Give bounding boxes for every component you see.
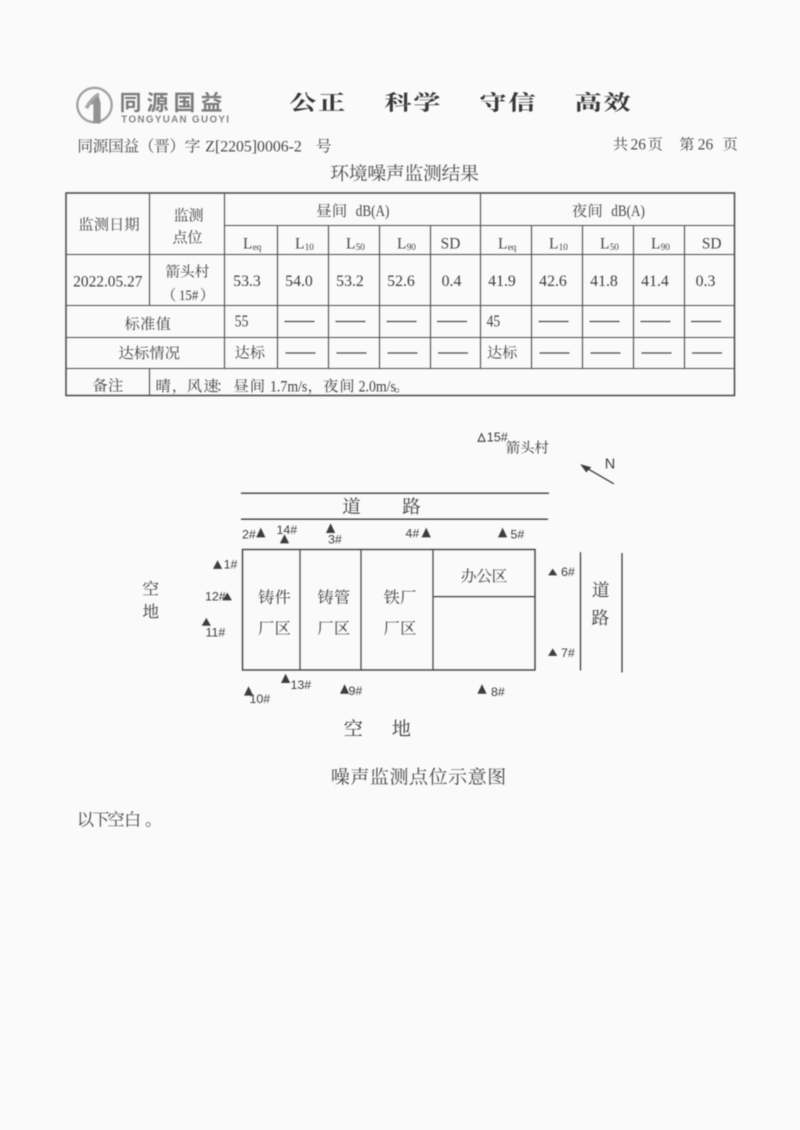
svg-text:13#: 13# [291, 678, 312, 692]
svg-text:eq: eq [253, 242, 262, 252]
svg-text:Z[2205]0006-2: Z[2205]0006-2 [205, 139, 302, 156]
svg-text:L: L [346, 235, 355, 252]
svg-text:2#: 2# [242, 528, 256, 542]
svg-text:1#: 1# [224, 557, 238, 571]
svg-text:dB(A): dB(A) [356, 203, 390, 220]
svg-text:10: 10 [559, 242, 569, 252]
svg-text:9#: 9# [349, 684, 363, 698]
svg-text:53.2: 53.2 [336, 273, 364, 290]
svg-text:L: L [397, 235, 406, 252]
svg-text:L: L [600, 235, 609, 252]
svg-text:8#: 8# [491, 685, 505, 699]
svg-text:10#: 10# [250, 692, 271, 706]
svg-text:54.0: 54.0 [285, 273, 313, 290]
svg-text:L: L [295, 235, 304, 252]
svg-text:eq: eq [508, 242, 517, 252]
svg-text:10: 10 [305, 242, 315, 252]
svg-text:L: L [243, 235, 252, 252]
svg-text:L: L [549, 235, 558, 252]
svg-text:50: 50 [356, 242, 366, 252]
svg-text:41.9: 41.9 [488, 273, 516, 290]
svg-text:15#: 15# [179, 287, 198, 303]
svg-text:2.0m/s: 2.0m/s [359, 379, 397, 396]
svg-text:L: L [498, 235, 507, 252]
svg-text:41.8: 41.8 [590, 273, 618, 290]
svg-text:45: 45 [487, 312, 501, 331]
svg-text:1.7m/s: 1.7m/s [270, 379, 308, 396]
svg-text:14#: 14# [277, 523, 298, 537]
svg-text:N: N [605, 456, 615, 472]
svg-text:53.3: 53.3 [233, 273, 261, 290]
svg-text:7#: 7# [561, 646, 575, 660]
svg-text:90: 90 [407, 242, 417, 252]
svg-text:12#: 12# [205, 590, 226, 604]
svg-text:6#: 6# [561, 565, 575, 579]
svg-text:SD: SD [441, 235, 461, 252]
svg-text:dB(A): dB(A) [611, 203, 645, 220]
svg-text:11#: 11# [206, 626, 226, 640]
svg-text:41.4: 41.4 [641, 273, 669, 290]
svg-text:50: 50 [610, 242, 620, 252]
svg-text:26: 26 [698, 137, 714, 154]
svg-text:4#: 4# [406, 527, 420, 541]
svg-text:26: 26 [631, 137, 647, 154]
svg-text:42.6: 42.6 [539, 273, 567, 290]
svg-text:5#: 5# [511, 528, 525, 542]
svg-text:0.3: 0.3 [696, 273, 716, 290]
svg-text:90: 90 [661, 242, 671, 252]
svg-text:2022.05.27: 2022.05.27 [73, 273, 142, 290]
svg-text:52.6: 52.6 [387, 273, 415, 290]
svg-text:TONGYUAN GUOYI: TONGYUAN GUOYI [121, 114, 230, 125]
svg-text:SD: SD [702, 235, 722, 252]
svg-text:L: L [651, 235, 660, 252]
svg-text:3#: 3# [328, 533, 342, 547]
svg-text:0.4: 0.4 [442, 273, 462, 290]
svg-text:55: 55 [235, 312, 249, 331]
svg-text:15#: 15# [487, 431, 508, 445]
